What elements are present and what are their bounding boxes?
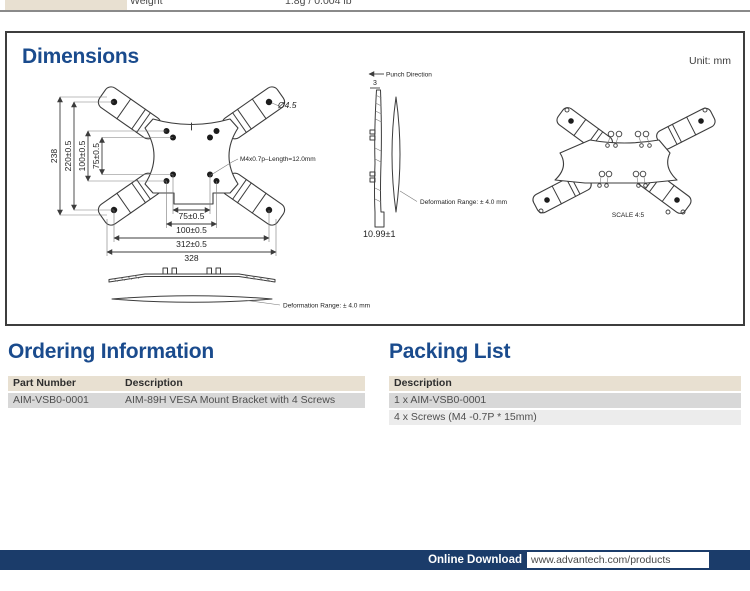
packing-table: Description 1 x AIM-VSB0-0001 4 x Screws…	[389, 376, 741, 427]
ordering-header-part-number: Part Number	[8, 376, 120, 391]
bottom-profile-drawing: Deformation Range: ± 4.0 mm	[109, 268, 370, 310]
packing-item-2: 4 x Screws (M4 -0.7P * 15mm)	[389, 410, 741, 425]
ordering-part-number: AIM-VSB0-0001	[8, 393, 120, 408]
table-row: 4 x Screws (M4 -0.7P * 15mm)	[389, 410, 741, 425]
dim-100-horizontal-label: 100±0.5	[176, 225, 207, 235]
dimensions-drawing: 238 220±0.5 100±0.5 75±0.5 75±0.5 100±0.…	[7, 33, 743, 324]
packing-list-title: Packing List	[389, 340, 510, 364]
ordering-table: Part Number Description AIM-VSB0-0001 AI…	[8, 376, 365, 410]
thread-spec-label: M4x0.7p–Length=12.0mm	[240, 156, 316, 163]
height-dim-label: 10.99±1	[363, 229, 395, 239]
dim-312-label: 312±0.5	[176, 239, 207, 249]
front-view-drawing: 238 220±0.5 100±0.5 75±0.5 75±0.5 100±0.…	[49, 84, 316, 263]
spec-category-cell	[5, 0, 127, 10]
spec-label: Weight	[130, 0, 163, 7]
packing-item-1: 1 x AIM-VSB0-0001	[389, 393, 741, 408]
bottom-deformation-label: Deformation Range: ± 4.0 mm	[283, 303, 370, 310]
dimensions-section: Dimensions Unit: mm	[5, 31, 745, 326]
datasheet-page: { "spec_row": { "label": "Weight", "valu…	[0, 0, 750, 591]
download-url[interactable]: www.advantech.com/products	[527, 552, 709, 568]
spec-table-row-weight: Weight 1.8g / 0.004 lb	[0, 0, 750, 12]
hole-diameter-label: Ø4.5	[277, 100, 297, 110]
dim-328-label: 328	[184, 253, 198, 263]
dim-238-label: 238	[49, 149, 59, 163]
dim-220-label: 220±0.5	[63, 140, 73, 171]
ordering-information-title: Ordering Information	[8, 340, 214, 364]
packing-header-row: Description	[389, 376, 741, 391]
punch-direction-label: Punch Direction	[386, 72, 432, 79]
online-download-label: Online Download	[428, 554, 522, 566]
online-download-bar: Online Download www.advantech.com/produc…	[0, 550, 750, 570]
ordering-description: AIM-89H VESA Mount Bracket with 4 Screws	[120, 393, 365, 408]
packing-header-description: Description	[389, 376, 741, 391]
thickness-label: 3	[373, 80, 377, 87]
table-row: 1 x AIM-VSB0-0001	[389, 393, 741, 408]
spec-value: 1.8g / 0.004 lb	[285, 0, 352, 7]
dim-75-vertical-label: 75±0.5	[91, 143, 101, 169]
table-row: AIM-VSB0-0001 AIM-89H VESA Mount Bracket…	[8, 393, 365, 408]
dim-75-horizontal-label: 75±0.5	[179, 211, 205, 221]
dim-100-vertical-label: 100±0.5	[77, 140, 87, 171]
rear-view-drawing: SCALE 4:5	[531, 105, 717, 219]
side-deformation-label: Deformation Range: ± 4.0 mm	[420, 199, 507, 206]
side-view-drawing: Punch Direction 3 Deformation Range: ± 4…	[363, 72, 507, 240]
scale-label: SCALE 4:5	[612, 212, 645, 219]
ordering-header-description: Description	[120, 376, 365, 391]
ordering-header-row: Part Number Description	[8, 376, 365, 391]
